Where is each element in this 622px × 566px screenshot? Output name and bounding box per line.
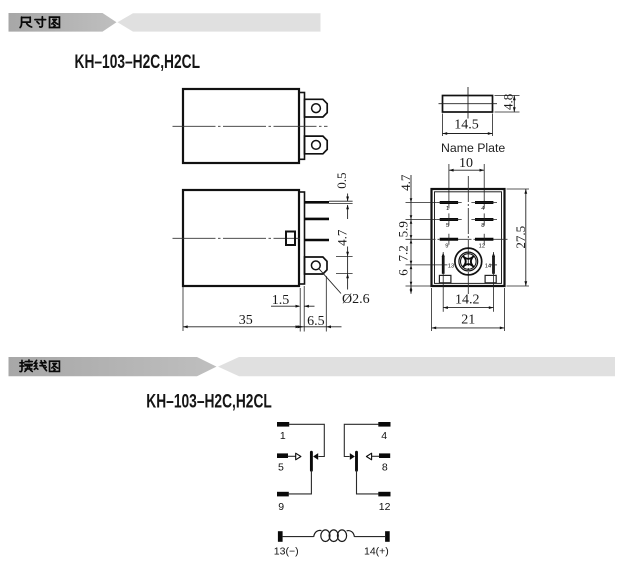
svg-text:14.5: 14.5 [454,118,479,133]
svg-text:5.9: 5.9 [395,221,410,237]
svg-text:5: 5 [278,462,284,474]
svg-text:12: 12 [379,501,391,513]
svg-text:8: 8 [481,223,484,229]
svg-text:13: 13 [448,264,454,270]
svg-text:6.5: 6.5 [307,314,325,329]
svg-text:14.2: 14.2 [455,292,480,307]
svg-text:9: 9 [278,501,284,513]
svg-text:KH–103–H2C,H2CL: KH–103–H2C,H2CL [146,391,272,412]
svg-text:13(−): 13(−) [274,546,299,558]
svg-text:1: 1 [280,430,286,442]
svg-text:27.5: 27.5 [513,226,528,249]
svg-text:14(+): 14(+) [364,546,389,558]
svg-text:0.5: 0.5 [334,172,349,188]
svg-text:35: 35 [239,313,253,328]
svg-text:1: 1 [446,206,449,212]
svg-text:6: 6 [395,269,410,276]
svg-text:1.5: 1.5 [272,293,290,308]
svg-text:14: 14 [485,264,492,270]
svg-text:10: 10 [459,156,473,171]
svg-text:4: 4 [481,206,485,212]
svg-text:21: 21 [461,313,475,328]
svg-text:9: 9 [445,244,448,250]
svg-text:12: 12 [479,244,485,250]
svg-text:8: 8 [382,462,388,474]
svg-text:4: 4 [381,430,387,442]
svg-text:4.7: 4.7 [398,174,413,191]
svg-text:4.8: 4.8 [501,94,516,110]
svg-text:KH–103–H2C,H2CL: KH–103–H2C,H2CL [75,52,201,73]
svg-text:Name Plate: Name Plate [441,141,505,155]
svg-text:4.7: 4.7 [335,229,350,246]
svg-text:Ø2.6: Ø2.6 [342,292,370,307]
svg-text:5: 5 [446,223,449,229]
svg-text:7.2: 7.2 [395,245,410,261]
